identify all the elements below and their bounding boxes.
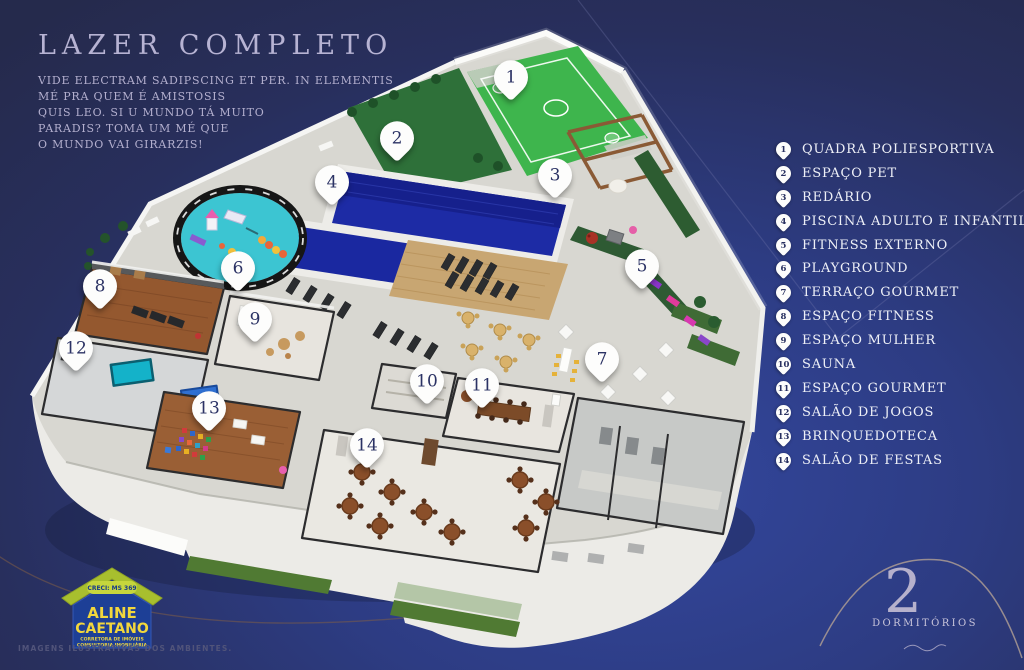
- map-marker-3: 3: [531, 151, 579, 199]
- legend-label: ESPAÇO GOURMET: [802, 381, 947, 396]
- map-marker-10: 10: [403, 357, 451, 405]
- legend-item-5: 5FITNESS EXTERNO: [776, 238, 1024, 253]
- marker-number: 13: [192, 391, 226, 425]
- legend-label: TERRAÇO GOURMET: [802, 285, 959, 300]
- header: LAZER COMPLETO VIDE ELECTRAM SADIPSCING …: [38, 30, 394, 153]
- legend-marker: 13: [773, 426, 794, 447]
- legend-item-8: 8ESPAÇO FITNESS: [776, 309, 1024, 324]
- broker-logo: CRECI: MS 369 ALINE CAETANO CORRETORA DE…: [56, 564, 168, 656]
- subtitle-line: MÉ PRA QUEM É AMISTOSIS: [38, 89, 394, 105]
- legend-marker: 5: [773, 234, 794, 255]
- legend: 1QUADRA POLIESPORTIVA 2ESPAÇO PET 3REDÁR…: [776, 142, 1024, 476]
- legend-marker: 4: [773, 211, 794, 232]
- legend-label: SALÃO DE JOGOS: [802, 405, 934, 420]
- marker-number: 11: [465, 368, 499, 402]
- legend-label: ESPAÇO MULHER: [802, 333, 936, 348]
- legend-label: ESPAÇO PET: [802, 166, 897, 181]
- subtitle-line: QUIS LEO. SI U MUNDO TÁ MUITO: [38, 105, 394, 121]
- legend-marker: 14: [773, 449, 794, 470]
- map-marker-7: 7: [578, 335, 626, 383]
- marker-number: 12: [59, 331, 93, 365]
- map-marker-5: 5: [618, 242, 666, 290]
- legend-label: PISCINA ADULTO E INFANTIL: [802, 214, 1024, 229]
- marker-number: 14: [350, 428, 384, 462]
- legend-marker: 3: [773, 187, 794, 208]
- legend-marker: 11: [773, 378, 794, 399]
- map-marker-2: 2: [373, 114, 421, 162]
- logo-name-2: CAETANO: [75, 621, 149, 637]
- badge-number: 2: [884, 562, 922, 622]
- legend-item-14: 14SALÃO DE FESTAS: [776, 453, 1024, 468]
- legend-label: ESPAÇO FITNESS: [802, 309, 935, 324]
- legend-marker: 1: [773, 139, 794, 160]
- map-marker-14: 14: [343, 421, 391, 469]
- subtitle-line: PARADIS? TOMA UM MÉ QUE: [38, 121, 394, 137]
- legend-item-4: 4PISCINA ADULTO E INFANTIL: [776, 214, 1024, 229]
- legend-item-10: 10SAUNA: [776, 357, 1024, 372]
- legend-marker: 2: [773, 163, 794, 184]
- legend-marker: 10: [773, 354, 794, 375]
- map-marker-9: 9: [231, 295, 279, 343]
- subtitle-line: O MUNDO VAI GIRARZIS!: [38, 137, 394, 153]
- page-title: LAZER COMPLETO: [38, 30, 394, 61]
- legend-label: BRINQUEDOTECA: [802, 429, 938, 444]
- marker-number: 1: [494, 60, 528, 94]
- legend-marker: 9: [773, 330, 794, 351]
- marker-number: 2: [380, 121, 414, 155]
- legend-item-2: 2ESPAÇO PET: [776, 166, 1024, 181]
- map-marker-8: 8: [76, 262, 124, 310]
- legend-label: QUADRA POLIESPORTIVA: [802, 142, 995, 157]
- legend-label: FITNESS EXTERNO: [802, 238, 948, 253]
- legend-label: SALÃO DE FESTAS: [802, 453, 943, 468]
- map-marker-1: 1: [487, 53, 535, 101]
- unit-badge: 2 DORMITÓRIOS: [858, 568, 992, 668]
- logo-name-1: ALINE: [87, 604, 137, 622]
- map-marker-6: 6: [214, 244, 262, 292]
- disclaimer-text: IMAGENS ILUSTRATIVAS DOS AMBIENTES.: [18, 644, 232, 653]
- legend-item-12: 12SALÃO DE JOGOS: [776, 405, 1024, 420]
- legend-item-1: 1QUADRA POLIESPORTIVA: [776, 142, 1024, 157]
- subtitle-line: VIDE ELECTRAM SADIPSCING ET PER. IN ELEM…: [38, 73, 394, 89]
- legend-item-11: 11ESPAÇO GOURMET: [776, 381, 1024, 396]
- logo-creci: CRECI: MS 369: [87, 585, 136, 592]
- badge-label: DORMITÓRIOS: [858, 618, 992, 629]
- legend-label: PLAYGROUND: [802, 261, 908, 276]
- map-marker-12: 12: [52, 324, 100, 372]
- logo-tagline-1: CORRETORA DE IMÓVEIS: [80, 636, 144, 643]
- legend-marker: 8: [773, 306, 794, 327]
- legend-item-6: 6PLAYGROUND: [776, 261, 1024, 276]
- map-marker-4: 4: [308, 158, 356, 206]
- legend-item-13: 13BRINQUEDOTECA: [776, 429, 1024, 444]
- map-marker-11: 11: [458, 361, 506, 409]
- marker-number: 8: [83, 269, 117, 303]
- marker-number: 4: [315, 165, 349, 199]
- marker-number: 10: [410, 364, 444, 398]
- poster: LAZER COMPLETO VIDE ELECTRAM SADIPSCING …: [0, 0, 1024, 670]
- legend-item-3: 3REDÁRIO: [776, 190, 1024, 205]
- marker-number: 9: [238, 302, 272, 336]
- badge-flourish: [902, 640, 948, 654]
- legend-marker: 7: [773, 282, 794, 303]
- legend-marker: 6: [773, 258, 794, 279]
- marker-number: 5: [625, 249, 659, 283]
- marker-number: 6: [221, 251, 255, 285]
- legend-item-9: 9ESPAÇO MULHER: [776, 333, 1024, 348]
- legend-marker: 12: [773, 402, 794, 423]
- marker-number: 3: [538, 158, 572, 192]
- legend-label: REDÁRIO: [802, 190, 872, 205]
- map-marker-13: 13: [185, 384, 233, 432]
- marker-number: 7: [585, 342, 619, 376]
- legend-item-7: 7TERRAÇO GOURMET: [776, 285, 1024, 300]
- legend-label: SAUNA: [802, 357, 856, 372]
